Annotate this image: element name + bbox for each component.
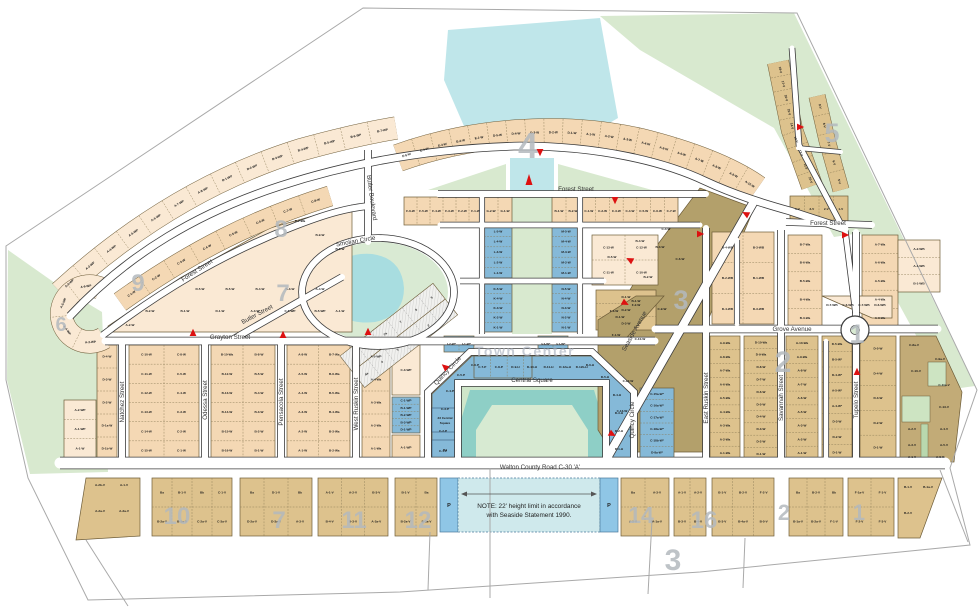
- lot-label: F-1-W: [471, 209, 480, 213]
- section-number-11: 11: [341, 507, 366, 534]
- lot-label: B-7-Wa: [800, 242, 811, 246]
- lot-label: B-1a-V: [923, 485, 934, 489]
- lot-label: D-5-Wa: [832, 342, 843, 346]
- lot-label: N-5-W: [562, 287, 571, 291]
- lot-label: D-6-W: [757, 390, 766, 394]
- lot-label: A-10-Wa: [796, 341, 809, 345]
- lot-label: D-6-WB: [874, 303, 886, 307]
- lot-label: C-8-W: [177, 353, 186, 357]
- lot-label: B-2-Wa: [329, 449, 340, 453]
- lot-block: [76, 478, 140, 540]
- lot-label: A-4-Wa: [875, 298, 886, 302]
- lot-label: C-4-W: [626, 209, 635, 213]
- section-number-2b: 2: [778, 500, 790, 525]
- lot-label: D-1-W: [622, 295, 631, 299]
- lot-label: B-2-W: [644, 275, 653, 279]
- lot-label: C-8a-V: [909, 343, 920, 347]
- lot-label: B-4a-V: [738, 520, 749, 524]
- lot-b4-label: B4: [443, 448, 447, 452]
- lot-label: F-1-W: [612, 333, 621, 337]
- lot-label: C-10-V: [911, 369, 922, 373]
- beach-divider-4: [743, 538, 745, 588]
- lot-label: C-7-P: [478, 365, 486, 369]
- lot-label: B-3-Wa: [800, 316, 811, 320]
- lot-label: A-3-Wa: [371, 401, 382, 405]
- lot-label: A-2-W: [126, 323, 135, 327]
- lot-label: A-1-Wa: [371, 447, 382, 451]
- lot-label: C-16a-W*: [650, 404, 664, 408]
- lot-label: D-12a-H: [559, 365, 571, 369]
- lot-label: D-2-W: [757, 440, 766, 444]
- lot-label: D-7-WB: [826, 303, 838, 307]
- street-label-pensacola: Pensacola Street: [278, 378, 285, 425]
- lot-label: B-5-W: [255, 372, 264, 376]
- lot-label: A-2-W: [298, 429, 307, 433]
- lot-label: Ba: [631, 491, 635, 495]
- lot-label: D-3-W: [622, 321, 631, 325]
- lot-label: Bb: [832, 491, 836, 495]
- lot-label: C-1-WP: [401, 399, 412, 403]
- lawn-amphitheater: [476, 405, 588, 460]
- section-number-6: 6: [55, 314, 66, 336]
- lot-label: B-1-W: [181, 309, 190, 313]
- lot-label: D-4-W*: [832, 373, 843, 377]
- lot-label: B-4-W: [636, 239, 645, 243]
- lot-label: F-2-W: [632, 303, 641, 307]
- lot-label: C-11-W: [141, 372, 152, 376]
- lot-label: A-2-W: [798, 437, 807, 441]
- lot-label: A-2-WB: [913, 247, 925, 251]
- town-center-label: Town Center: [475, 343, 575, 359]
- lot-label: D-1a-W: [102, 424, 113, 428]
- lot-block: [789, 478, 843, 536]
- street-label-forest-right: Forest Street: [810, 220, 846, 227]
- lot-label: D-6-H: [586, 363, 595, 367]
- lot-label: D-7-Wa: [295, 219, 306, 223]
- lot-label: C-17a-W*: [650, 415, 664, 419]
- lot-label: B-3-V: [718, 520, 727, 524]
- lot-label: D-1-W: [567, 131, 576, 135]
- lot-label: A-2-V: [694, 491, 703, 495]
- lot-label: C-12-W: [623, 379, 634, 383]
- lot-label: B-1-WB: [913, 281, 925, 285]
- lot-label: A-1-W: [336, 309, 345, 313]
- lot-label: K-3-W: [494, 306, 503, 310]
- lot-label: D-2a-V: [247, 520, 258, 524]
- section-number-3: 3: [673, 285, 688, 315]
- lot-label: A-3-Wa: [720, 424, 731, 428]
- lot-label: A-5-W*: [832, 388, 843, 392]
- lot-label: C-10-W: [141, 353, 152, 357]
- lot-label: C-2-W: [177, 429, 186, 433]
- lot-label: B-5-Wa: [329, 391, 340, 395]
- lot-label: A-4-W*: [832, 404, 843, 408]
- lot-label: B-5-Wa: [800, 279, 811, 283]
- lot-label: A-3-W: [298, 410, 307, 414]
- street-label-west-ruskin: West Ruskin Street: [353, 377, 360, 430]
- section-number-1: 1: [849, 319, 864, 349]
- central-square-lot-label-1: 23 Central: [438, 416, 453, 420]
- section-number-10: 10: [164, 503, 191, 530]
- lot-label: C-13-W: [141, 410, 152, 414]
- lot-label: C-3-W: [177, 410, 186, 414]
- lot-label: C-1-W: [584, 209, 593, 213]
- lot-label: F-1-V: [879, 491, 888, 495]
- lot-label: A-1-W: [586, 132, 595, 137]
- lot-label: A-5-W: [798, 410, 807, 414]
- section-number-14: 14: [628, 502, 654, 528]
- lot-label: F-3-W: [445, 209, 454, 213]
- lot-label: B-7-Wa: [329, 353, 340, 357]
- lot-label: B-1-WP: [401, 406, 412, 410]
- lot-label: D-8-W: [757, 365, 766, 369]
- section-number-9: 9: [131, 270, 144, 297]
- lot-label: M-5-W: [561, 229, 570, 233]
- lot-label: B-2-V: [812, 491, 821, 495]
- lot-label: D-2-W: [874, 421, 883, 425]
- lot-label: D-1-WP: [401, 428, 412, 432]
- lot-label: A-1-V: [678, 491, 687, 495]
- lot-label: C-3-W: [612, 209, 621, 213]
- note-line-2: with Seaside Statement 1990.: [486, 512, 572, 519]
- lot-label: A-1-WP: [401, 446, 412, 450]
- lot-label: I-1-W*: [462, 342, 472, 346]
- lot-label: D-2-W: [549, 130, 558, 134]
- lot-label: C-7-WB: [858, 303, 870, 307]
- lot-label: A-4-V: [940, 427, 949, 431]
- lot-label: A-5-Wa: [875, 279, 886, 283]
- central-square-label: Central Square: [511, 377, 553, 384]
- lot-label: Ba: [425, 491, 429, 495]
- lot-label: C-4-W: [662, 227, 671, 231]
- lot-label: D-3-W: [874, 396, 883, 400]
- lot-label: B-1-V: [904, 485, 913, 489]
- lot-label: D-5-W: [608, 255, 617, 259]
- street-label-quincy-right: Quincy Circle: [629, 401, 636, 438]
- lot-label: B-16-W: [222, 449, 233, 453]
- lot-label: C-2-W: [598, 209, 607, 213]
- lot-label: F-1-V: [830, 520, 839, 524]
- note-line-1: NOTE: 22' height limit in accordance: [477, 503, 581, 510]
- lot-label: F-4-W: [432, 209, 441, 213]
- lot-label: A-6-V: [936, 455, 945, 459]
- lot-label: F-2-V: [760, 491, 769, 495]
- lot-label: C-10-W: [636, 271, 647, 275]
- beach-divider-6: [940, 470, 968, 542]
- lot-label: B-8-W: [255, 353, 264, 357]
- street-label-natchez: Natchez Street: [119, 381, 126, 422]
- lot-label: K-1-W: [494, 325, 503, 329]
- lot-label: G-1-W: [500, 209, 509, 213]
- lot-label: A-9-Wa: [797, 355, 808, 359]
- lot-label: B-14-W: [222, 410, 233, 414]
- lot-label: A-7-Wa: [720, 369, 731, 373]
- lot-label: A-3-V: [908, 443, 917, 447]
- road-label-walton: Walton County Road C-30 'A': [500, 464, 580, 471]
- section-number-4: 4: [518, 125, 538, 166]
- lot-label: B-3-W: [255, 410, 264, 414]
- lot-label: A-4-W: [298, 391, 307, 395]
- lot-label: C-13-W: [603, 246, 614, 250]
- lot-label: I-2-W*: [447, 342, 457, 346]
- parking-label-left: P: [447, 503, 451, 509]
- lot-label: B-4-Wa: [800, 298, 811, 302]
- lot-label: C-4-P: [446, 389, 454, 393]
- lot-label: C-2a-V: [197, 520, 208, 524]
- lot-label: A-8-Wa: [720, 355, 731, 359]
- section-number-7b: 7: [272, 507, 285, 534]
- lot-label: C-11a-V: [938, 383, 950, 387]
- lot-label: N-2-W: [562, 316, 571, 320]
- lot-label: N-4-W: [562, 297, 571, 301]
- lot-label: B-3-Wa: [329, 429, 340, 433]
- lot-label: C-1-V: [218, 491, 227, 495]
- lot-label: F-3-V: [879, 520, 888, 524]
- lot-label: C-6-W: [676, 257, 685, 261]
- lot-label: B-2-WP: [401, 413, 412, 417]
- lot-label: B-2-W: [255, 429, 264, 433]
- lot-label: A-1-V: [326, 491, 335, 495]
- lot-label: D-1b-W: [102, 447, 113, 451]
- lot-label: D-4-H: [613, 393, 622, 397]
- lot-label: C-7-W: [667, 209, 676, 213]
- lot-label: M-3-W: [561, 250, 570, 254]
- lot-label: D-1-W: [833, 450, 842, 454]
- lot-label: D-2-W: [833, 435, 842, 439]
- lot-label: A-5-W: [298, 372, 307, 376]
- lot-label: C-18a-W*: [650, 427, 664, 431]
- lot-label: D-2-W: [103, 401, 112, 405]
- lot-label: A-2a-V: [95, 509, 106, 513]
- lot-label: D-1-W: [874, 446, 883, 450]
- park-axis: [512, 196, 552, 334]
- lot-label: K-2-W: [494, 316, 503, 320]
- lot-label: C-13-V: [939, 405, 950, 409]
- lot-label: C-1-W: [177, 449, 186, 453]
- lot-label: B-13-W: [222, 391, 233, 395]
- central-square-lot-label-2: Square: [440, 421, 451, 425]
- lot-label: D-5-H: [601, 375, 610, 379]
- lot-label: C-12-W: [636, 246, 647, 250]
- lot-label: Bb: [200, 491, 204, 495]
- section-number-2: 2: [775, 346, 792, 379]
- lot-label: A-1-W: [298, 449, 307, 453]
- lot-label: B-1a-V: [793, 520, 804, 524]
- lot-label: A-1-V: [120, 483, 129, 487]
- lot-label: A-2-V: [908, 427, 917, 431]
- lot-label: A-1-WB: [913, 264, 925, 268]
- lot-label: L-5-W: [494, 229, 503, 233]
- lot-label: B-4-V: [326, 520, 335, 524]
- lot-label: C-10-W: [635, 337, 646, 341]
- lot-label: A-4-Wa: [371, 378, 382, 382]
- lot-label: D-2-H: [615, 429, 624, 433]
- lot-label: C-5-WP: [285, 309, 296, 313]
- lot-label: C-15a-W*: [650, 392, 664, 396]
- lot-label: B-4-Wa: [329, 410, 340, 414]
- lot-label: L-4-W: [494, 240, 503, 244]
- lot-label: D-4-W: [757, 415, 766, 419]
- lot-label: D-9-Wa: [756, 353, 767, 357]
- lot-label: D-3-W: [103, 378, 112, 382]
- lot-label: N-3-W: [562, 306, 571, 310]
- lot-label: G-2-W: [486, 209, 495, 213]
- lot-label: B-6-Wa: [329, 372, 340, 376]
- lot-label: A-3-V: [653, 491, 662, 495]
- lot-label: F-3-W: [610, 309, 619, 313]
- lot-label: B-2-W: [569, 209, 578, 213]
- lot-label: D-4-W: [874, 371, 883, 375]
- lot-label: A-6-W: [798, 396, 807, 400]
- lot-label: K-4-W: [494, 297, 503, 301]
- beach-divider-5: [86, 540, 128, 606]
- lot-label: D-7-W: [757, 378, 766, 382]
- lot-label: A-5-WP: [371, 355, 382, 359]
- lot-label: C-5-W: [177, 372, 186, 376]
- lot-label: B-1-V: [178, 491, 187, 495]
- lot-label: B-5-WP: [315, 309, 326, 313]
- lot-label: F-6-W: [406, 209, 415, 213]
- lot-label: B-3-V: [678, 520, 687, 524]
- lot-label: A-4-W: [316, 287, 325, 291]
- lot-label: F-1a-V: [855, 491, 865, 495]
- section-number-12: 12: [405, 507, 432, 534]
- lot-label: C-2-P: [439, 429, 447, 433]
- lot-label: B-2-V: [904, 511, 913, 515]
- lot-label: B-4-WB: [722, 245, 734, 249]
- park-wedge-left: [428, 164, 506, 190]
- seaside-plat-map: 987a7654a432a21 D-5-WB-4-WB-3-WB-2-WB-1-…: [0, 0, 980, 609]
- lot-label: C-11-W: [603, 271, 614, 275]
- street-label-tupelo: Tupelo Street: [853, 381, 860, 418]
- lot-label: B-2-V: [739, 491, 748, 495]
- lot-label: B-2a-V: [811, 520, 822, 524]
- lot-label: D-9-H: [511, 365, 520, 369]
- lot-label: C-14-W: [141, 429, 152, 433]
- lot-label: C-3a-V: [217, 520, 228, 524]
- lot-label: C-5-W: [639, 209, 648, 213]
- lot-label: F-2-W: [458, 209, 467, 213]
- lot-label: A-8-W: [798, 369, 807, 373]
- section-number-7: 7: [276, 280, 289, 307]
- lot-label: A-2-Wa: [720, 437, 731, 441]
- lot-label: C-6-WB: [842, 303, 854, 307]
- lot-label: A-3a-V: [119, 509, 130, 513]
- lot-label: L-1-W: [494, 271, 503, 275]
- lot-label: Ba: [796, 491, 800, 495]
- lot-label: D-4-WB: [722, 307, 734, 311]
- lot-label: C-5-P: [457, 373, 465, 377]
- lot-label: N-1-W: [562, 325, 571, 329]
- lot-label: D-1-W: [216, 309, 225, 313]
- lot-label: D-5-W: [874, 347, 883, 351]
- lot-label: B-4-W: [256, 287, 265, 291]
- section-number-8: 8: [274, 216, 287, 243]
- lot-label: A-8-W: [298, 353, 307, 357]
- lot-label: B-1-V: [718, 491, 727, 495]
- lot-label: D-1-V: [272, 491, 281, 495]
- lot-label: M-4-W: [561, 240, 570, 244]
- lot-label: L-2-W: [494, 261, 503, 265]
- lot-label: C-6-W: [653, 209, 662, 213]
- lot-label: M-2-W: [561, 261, 570, 265]
- lot-label: A-1-Wa: [720, 451, 731, 455]
- lot-label: C-8-P: [495, 365, 503, 369]
- street-label-savannah: Savannah Street: [778, 375, 785, 421]
- lot-label: C-9a-V: [935, 357, 946, 361]
- lot-label: D-4-W: [103, 355, 112, 359]
- lot-label: B-2-W: [146, 309, 155, 313]
- plat-map-svg: 987a7654a432a21 D-5-WB-4-WB-3-WB-2-WB-1-…: [0, 0, 980, 609]
- lot-label: B-1-W: [555, 209, 564, 213]
- lot-label: C-3-WP: [401, 368, 412, 372]
- lot-label: A-3-Wa: [875, 316, 886, 320]
- lot-label: A-5-V: [940, 443, 949, 447]
- lot-label: A-1-W: [798, 451, 807, 455]
- lot-label: A-3-W: [798, 424, 807, 428]
- lot-label: D-11-H: [544, 365, 555, 369]
- lot-label: B-5-W: [226, 287, 235, 291]
- lot-label: B-3-WP: [401, 420, 412, 424]
- lot-label: B-5-W*: [832, 357, 843, 361]
- section-number-3b: 3: [665, 544, 682, 577]
- section-number-16: 16: [691, 507, 718, 534]
- lot-label: B-6-Wa: [800, 261, 811, 265]
- lot-label: B-10-Wa: [221, 353, 234, 357]
- lot-label: B-1-W: [255, 449, 264, 453]
- lot-label: C-18b-W*: [650, 439, 665, 443]
- lot-label: A-1-V: [908, 455, 917, 459]
- lot-label: B-4-W: [255, 391, 264, 395]
- lot-label: A-4-Wa: [720, 410, 731, 414]
- lot-label: A-1-W: [76, 446, 85, 450]
- lot-label: K-5-W: [494, 287, 503, 291]
- lot-label: B-5-V: [760, 520, 769, 524]
- lot-label: A-3-V: [296, 520, 305, 524]
- lot-label: D-2-W: [622, 308, 631, 312]
- lot-label: A-2-WP: [75, 408, 86, 412]
- lot-label: L-3-W: [494, 250, 503, 254]
- lot-label: Ba: [160, 491, 164, 495]
- lot-label: M-1-W: [561, 271, 570, 275]
- street-label-odessa: Odessa Street: [202, 380, 209, 420]
- parking-label-right: P: [607, 503, 611, 509]
- lot-label: B-3-W: [656, 245, 665, 249]
- lot-label: C-3-P: [441, 407, 449, 411]
- lot-label: Ba: [250, 491, 254, 495]
- lot-label: B-3-V: [372, 491, 381, 495]
- lot-label: A-1-WP: [75, 427, 86, 431]
- street-label-grayton: Grayton Street: [210, 334, 251, 341]
- street-label-grove: Grove Avenue: [772, 326, 812, 333]
- lot-label: B-12-W: [222, 372, 233, 376]
- beach-divider-2: [428, 532, 430, 590]
- lot-label: A-7-Wa: [875, 242, 886, 246]
- lot-label: B-3-WB: [753, 245, 765, 249]
- lot-label: A-7-W: [798, 382, 807, 386]
- lot-label: A-2-Wa: [371, 424, 382, 428]
- lot-label: D-3-WB: [753, 307, 765, 311]
- lot-label: A-6-Wa: [720, 382, 731, 386]
- lot-label: D-1-W: [757, 452, 766, 456]
- lot-label: C-4-W: [177, 391, 186, 395]
- lot-label: D-1-H: [615, 447, 624, 451]
- lot-label: B-2-WB: [722, 276, 734, 280]
- street-label-east-ruskin: East Ruskin Street: [703, 372, 710, 424]
- lot-label: C-12-W: [141, 391, 152, 395]
- lot-label: D-8a-W*: [651, 450, 664, 454]
- lot-label: A-6-Wa: [875, 261, 886, 265]
